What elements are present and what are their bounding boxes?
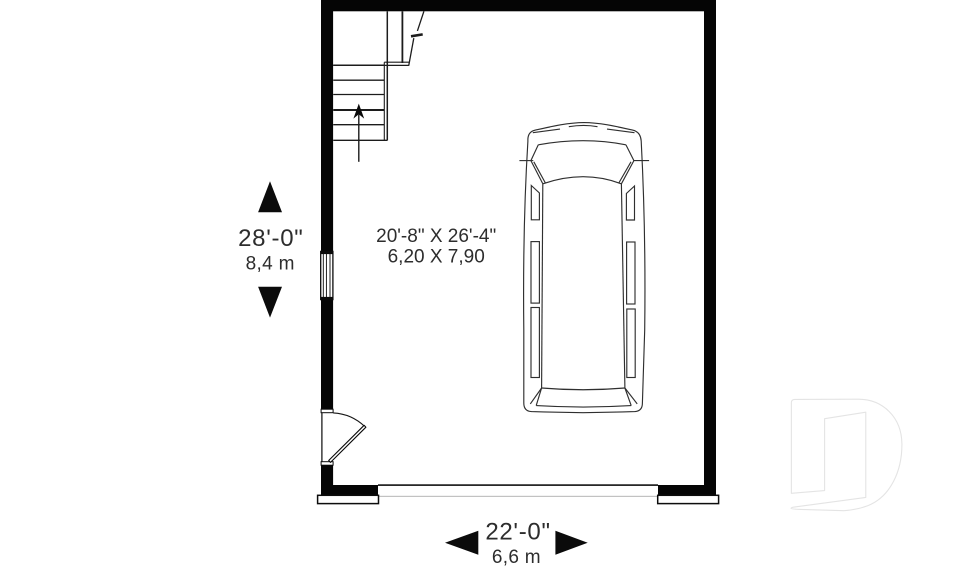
- svg-text:6,20 X 7,90: 6,20 X 7,90: [388, 246, 485, 267]
- svg-text:8,4 m: 8,4 m: [246, 253, 295, 274]
- svg-text:20'-8" X 26'-4": 20'-8" X 26'-4": [376, 226, 496, 247]
- svg-text:6,6 m: 6,6 m: [492, 547, 541, 568]
- svg-text:22'-0": 22'-0": [485, 518, 550, 545]
- svg-text:28'-0": 28'-0": [238, 225, 303, 252]
